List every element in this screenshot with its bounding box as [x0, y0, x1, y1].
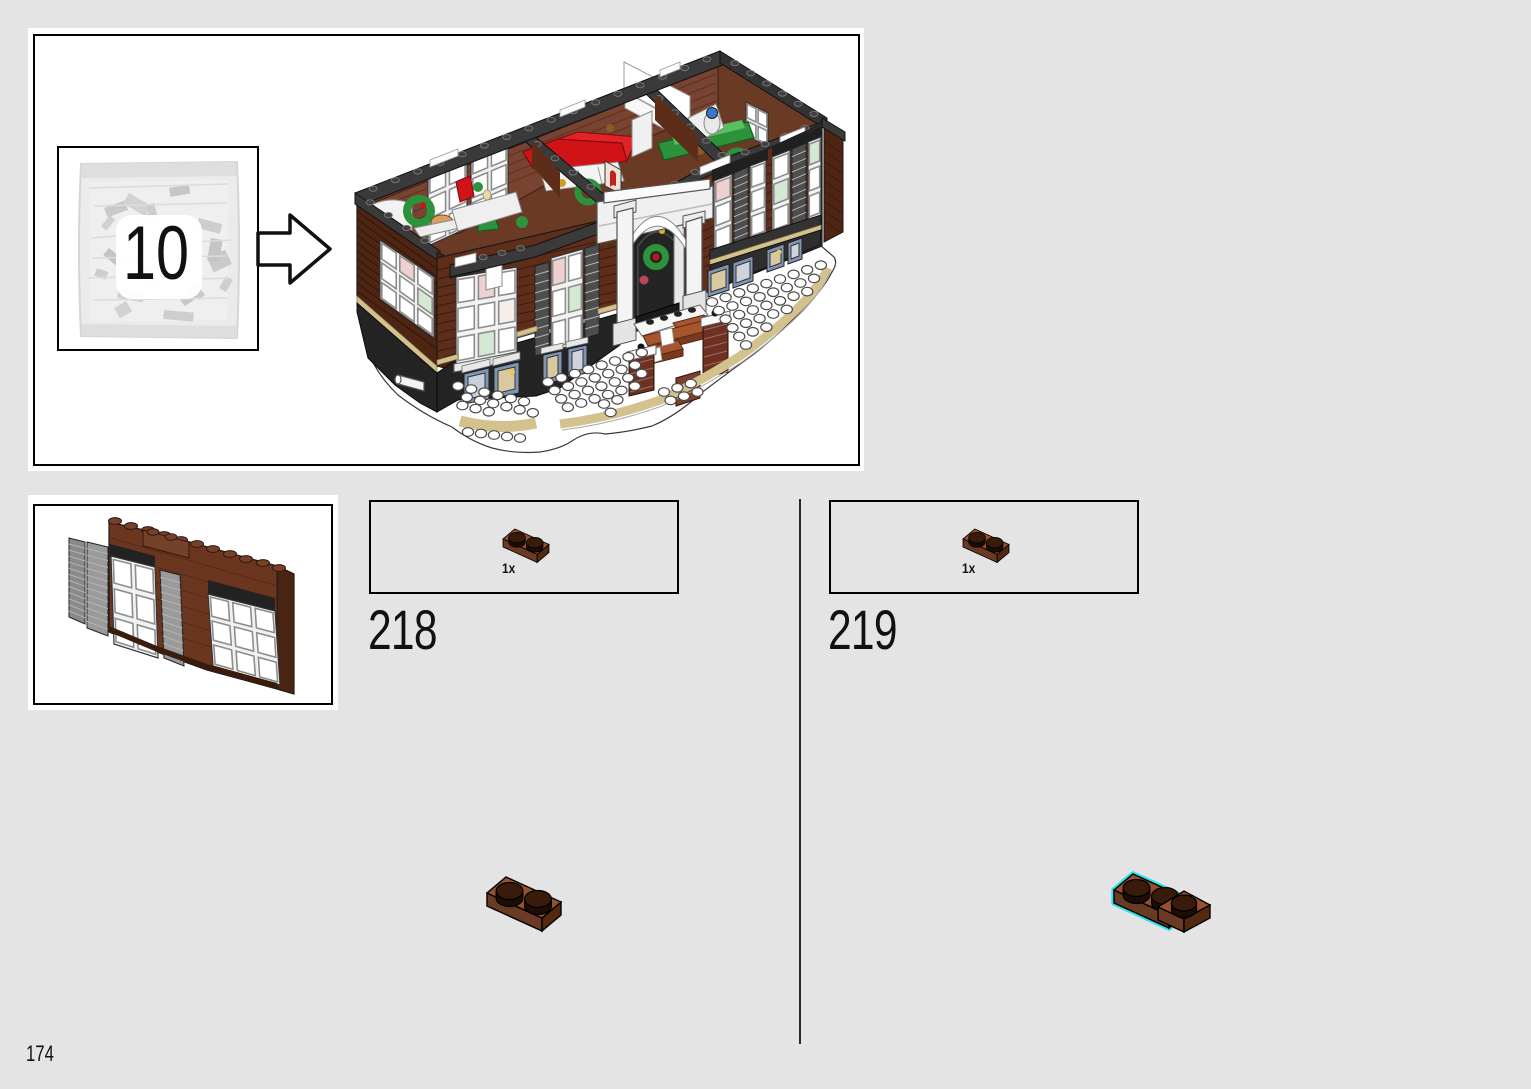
svg-text:10: 10 [123, 211, 189, 296]
